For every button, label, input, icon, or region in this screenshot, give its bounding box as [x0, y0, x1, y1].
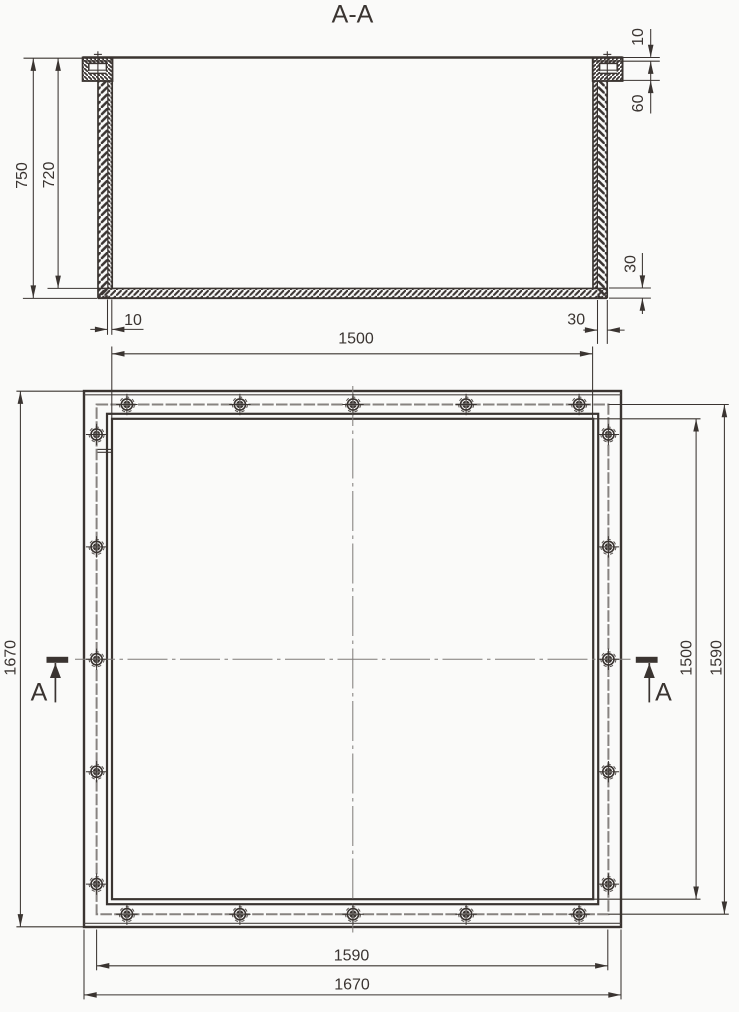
svg-text:1670: 1670 [334, 976, 370, 993]
svg-text:30: 30 [623, 255, 640, 273]
svg-text:A: A [655, 678, 672, 706]
svg-text:30: 30 [567, 312, 585, 329]
svg-text:60: 60 [630, 94, 647, 112]
svg-text:1500: 1500 [338, 331, 374, 348]
svg-text:A-A: A-A [332, 0, 374, 28]
svg-text:720: 720 [41, 162, 58, 189]
svg-text:10: 10 [124, 312, 142, 329]
svg-text:1590: 1590 [334, 948, 370, 965]
svg-text:A: A [31, 679, 48, 707]
svg-text:1590: 1590 [708, 640, 725, 676]
svg-text:1670: 1670 [2, 640, 19, 676]
svg-text:10: 10 [630, 28, 647, 46]
svg-text:750: 750 [14, 162, 31, 189]
svg-text:1500: 1500 [679, 640, 696, 676]
